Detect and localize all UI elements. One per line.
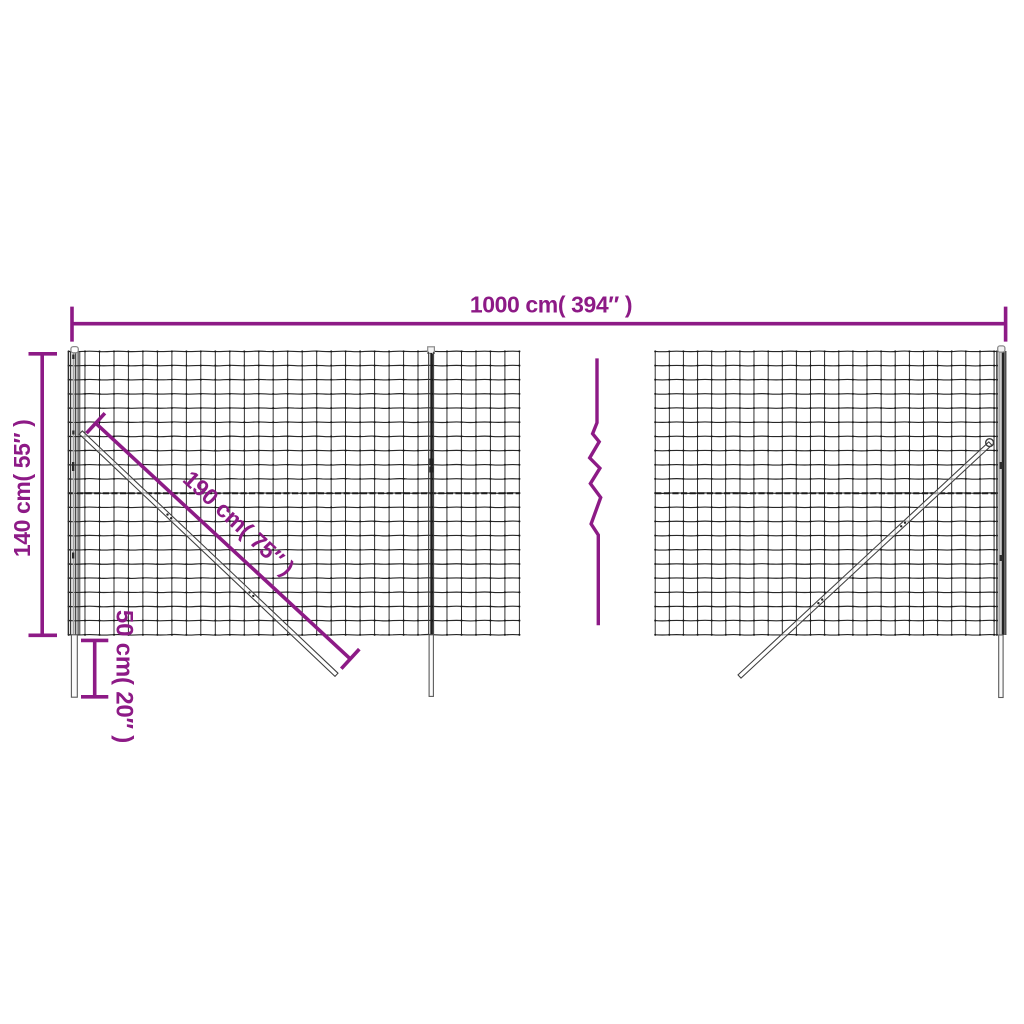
svg-text:50 cm( 20″ ): 50 cm( 20″ ) — [111, 610, 138, 743]
svg-text:1000 cm( 394″ ): 1000 cm( 394″ ) — [470, 292, 632, 318]
svg-text:140 cm( 55″ ): 140 cm( 55″ ) — [9, 420, 35, 558]
